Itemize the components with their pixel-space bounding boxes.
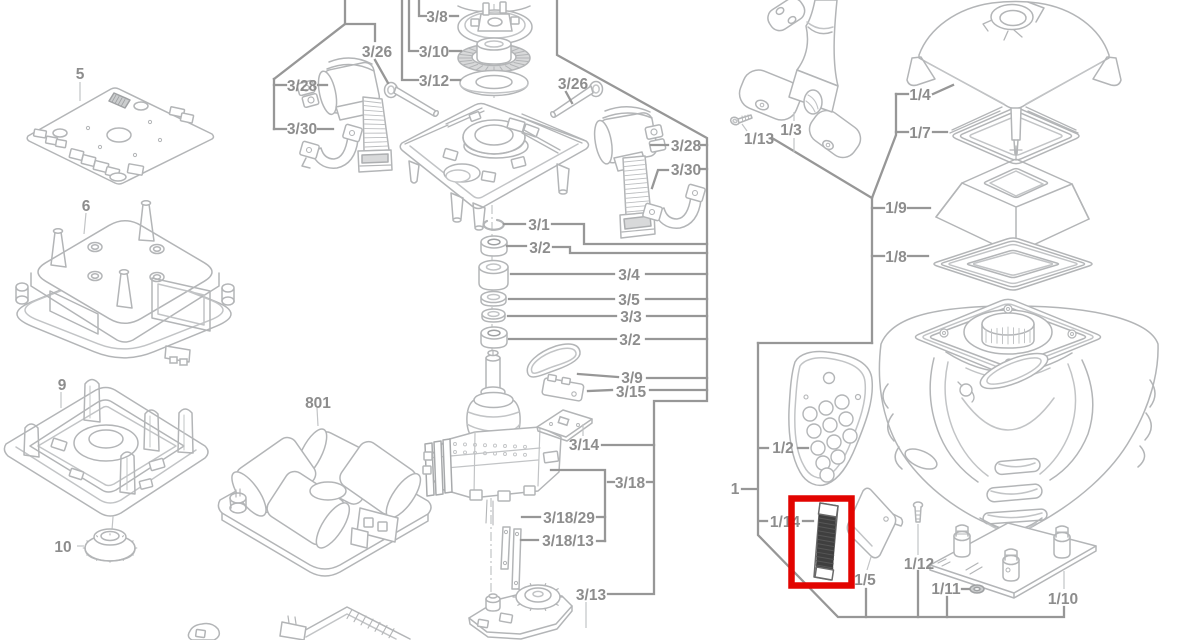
svg-text:801: 801 — [305, 395, 331, 412]
svg-text:3/18/13: 3/18/13 — [542, 533, 594, 550]
svg-text:6: 6 — [82, 198, 91, 215]
svg-text:3/10: 3/10 — [419, 44, 449, 61]
svg-text:1/11: 1/11 — [931, 581, 961, 598]
svg-text:3/1: 3/1 — [528, 217, 550, 234]
svg-text:3/30: 3/30 — [671, 162, 701, 179]
svg-text:10: 10 — [54, 539, 71, 556]
svg-text:3/15: 3/15 — [616, 384, 647, 401]
svg-text:3/28: 3/28 — [287, 78, 318, 95]
svg-text:3/18/29: 3/18/29 — [543, 510, 595, 527]
svg-text:3/2: 3/2 — [529, 240, 551, 257]
svg-text:1/14: 1/14 — [770, 514, 801, 531]
svg-text:3/12: 3/12 — [419, 73, 449, 90]
svg-text:1/13: 1/13 — [744, 131, 775, 148]
svg-text:3/3: 3/3 — [620, 309, 642, 326]
svg-text:3/28: 3/28 — [671, 138, 702, 155]
svg-text:1/12: 1/12 — [904, 556, 934, 573]
svg-text:3/30: 3/30 — [287, 121, 317, 138]
svg-text:1/9: 1/9 — [885, 200, 907, 217]
svg-text:3/14: 3/14 — [569, 437, 600, 454]
svg-text:1: 1 — [731, 481, 740, 498]
svg-text:3/26: 3/26 — [558, 76, 589, 93]
svg-text:1/5: 1/5 — [854, 572, 876, 589]
svg-text:1/2: 1/2 — [772, 440, 794, 457]
svg-text:3/5: 3/5 — [618, 292, 640, 309]
svg-text:3/8: 3/8 — [426, 9, 448, 26]
svg-text:1/4: 1/4 — [909, 87, 931, 104]
svg-text:1/7: 1/7 — [909, 125, 931, 142]
svg-text:9: 9 — [58, 377, 67, 394]
svg-text:1/10: 1/10 — [1048, 591, 1078, 608]
svg-text:3/18: 3/18 — [615, 475, 646, 492]
svg-text:3/4: 3/4 — [618, 267, 640, 284]
svg-text:3/13: 3/13 — [576, 587, 607, 604]
svg-text:3/26: 3/26 — [362, 44, 393, 61]
svg-text:5: 5 — [76, 66, 85, 83]
svg-text:3/2: 3/2 — [619, 332, 641, 349]
svg-text:1/8: 1/8 — [885, 249, 907, 266]
svg-text:1/3: 1/3 — [780, 122, 802, 139]
